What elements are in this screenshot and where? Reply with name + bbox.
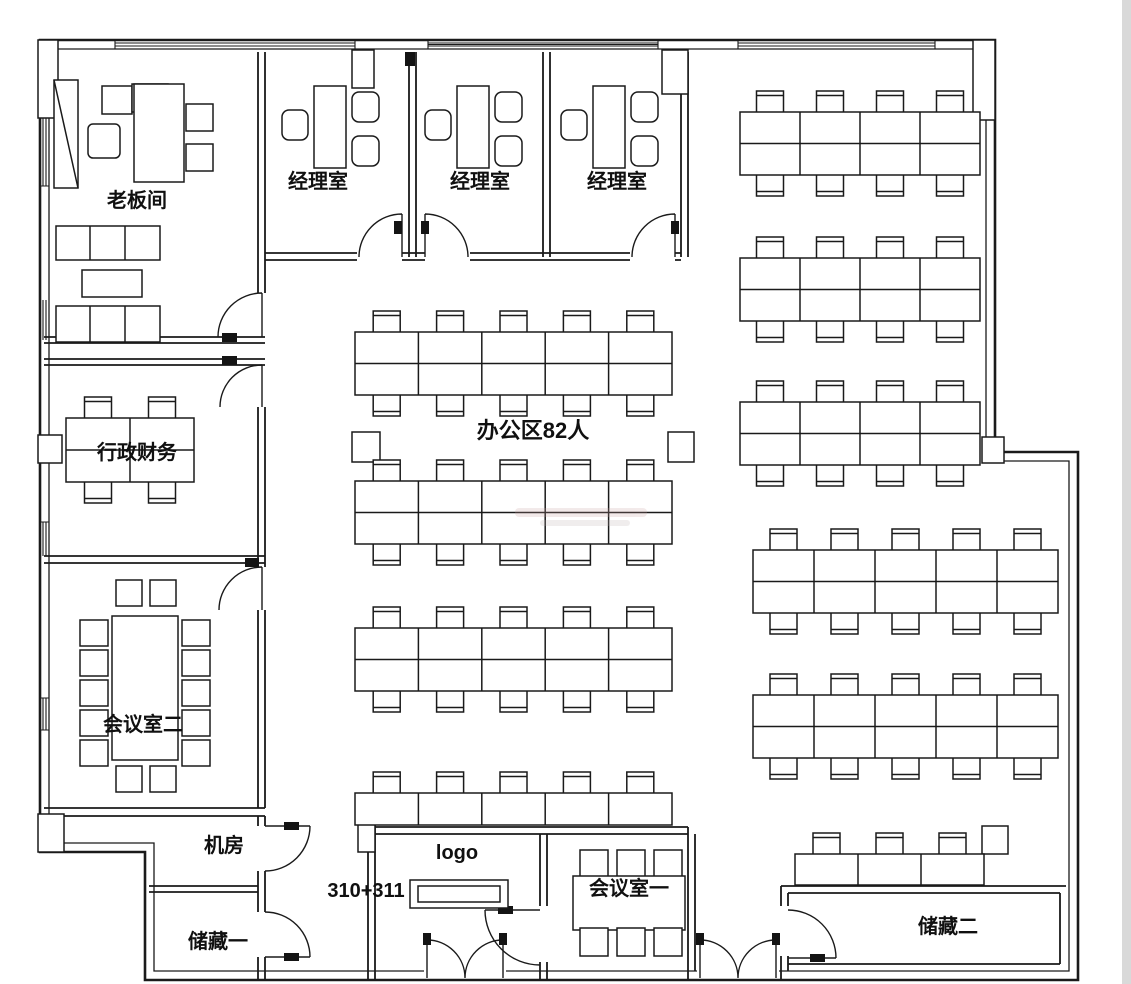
- office-chair: [425, 110, 451, 140]
- door-manager-1: [359, 214, 402, 257]
- door-jamb: [772, 933, 780, 945]
- pier: [973, 40, 995, 120]
- desk-cluster: [795, 833, 984, 885]
- floor-plan-page: 老板间 经理室 经理室 经理室 行政财务 会议室二 办公区82人 机房 储藏一 …: [0, 0, 1131, 984]
- manager-desk: [593, 86, 625, 168]
- pier: [405, 52, 415, 66]
- label-logo: logo: [436, 842, 478, 864]
- door-jamb: [394, 221, 402, 234]
- door-handle: [284, 822, 299, 830]
- chair: [80, 740, 108, 766]
- chair: [617, 928, 645, 956]
- office-chair: [561, 110, 587, 140]
- manager-room-furniture: [425, 86, 522, 168]
- chair: [654, 928, 682, 956]
- label-machine-room: 机房: [204, 833, 244, 857]
- pier: [38, 435, 62, 463]
- chair: [80, 620, 108, 646]
- floor-plan-drawing: 老板间 经理室 经理室 经理室 行政财务 会议室二 办公区82人 机房 储藏一 …: [0, 0, 1131, 984]
- chair: [182, 680, 210, 706]
- label-storage-1: 储藏一: [188, 929, 248, 953]
- label-open-office: 办公区82人: [477, 418, 589, 443]
- sofa: [56, 306, 160, 342]
- door-storage-2: [788, 910, 836, 958]
- chair: [182, 710, 210, 736]
- reception-counter-inner: [418, 886, 500, 902]
- desk-cluster: [355, 607, 672, 712]
- boss-room-furniture: [56, 84, 213, 342]
- label-meeting-room-2: 会议室二: [103, 712, 183, 736]
- desk-cluster: [753, 529, 1058, 634]
- label-storage-2: 储藏二: [918, 914, 978, 938]
- pier: [352, 50, 374, 88]
- label-manager-room-2: 经理室: [450, 169, 510, 193]
- chair: [80, 680, 108, 706]
- door-manager-2: [425, 214, 468, 257]
- chair: [116, 766, 142, 792]
- cabinet: [352, 432, 380, 462]
- conference-table: [112, 616, 178, 760]
- door-storage-1: [265, 912, 310, 957]
- sofa: [56, 226, 160, 260]
- door-jamb: [423, 933, 431, 945]
- office-chair: [495, 92, 522, 122]
- door-meeting-1: [485, 910, 540, 965]
- pier: [662, 50, 688, 94]
- desk-cluster: [740, 91, 980, 196]
- meeting-room-1-furniture: [573, 850, 685, 956]
- door-jamb: [499, 933, 507, 945]
- door-jamb: [222, 333, 237, 342]
- chair: [182, 650, 210, 676]
- door-handle: [284, 953, 299, 961]
- guest-chair: [186, 104, 213, 131]
- door-machine-room: [265, 826, 310, 871]
- chair: [116, 580, 142, 606]
- office-chair: [88, 124, 120, 158]
- door-jamb: [245, 558, 259, 567]
- cabinet: [102, 86, 132, 114]
- label-unit-number: 310+311: [327, 880, 404, 902]
- manager-room-furniture: [561, 86, 658, 168]
- cabinet: [982, 826, 1008, 854]
- workstations: [66, 86, 1058, 885]
- meeting-room-2-furniture: [80, 580, 210, 792]
- chair: [150, 766, 176, 792]
- label-admin-finance: 行政财务: [96, 440, 178, 464]
- executive-desk: [134, 84, 184, 182]
- desk-cluster: [740, 381, 980, 486]
- office-chair: [352, 136, 379, 166]
- door-boss-room: [218, 293, 262, 337]
- desk-block: [795, 854, 984, 885]
- door-jamb: [696, 933, 704, 945]
- door-jamb: [671, 221, 679, 234]
- guest-chair: [186, 144, 213, 171]
- manager-desk: [457, 86, 489, 168]
- label-manager-room-3: 经理室: [587, 169, 647, 193]
- door-jamb: [421, 221, 429, 234]
- desk-cluster: [355, 772, 672, 825]
- office-chair: [631, 92, 658, 122]
- door-manager-3: [632, 214, 675, 257]
- chair: [617, 850, 645, 878]
- label-meeting-room-1: 会议室一: [589, 876, 669, 900]
- chair: [580, 928, 608, 956]
- desk-cluster: [753, 674, 1058, 779]
- pier: [38, 814, 64, 852]
- pier: [982, 437, 1004, 463]
- page-edge: [1122, 0, 1131, 984]
- office-chair: [282, 110, 308, 140]
- chair: [80, 650, 108, 676]
- office-chair: [352, 92, 379, 122]
- chair: [182, 620, 210, 646]
- chair: [654, 850, 682, 878]
- desk-cluster: [740, 237, 980, 342]
- door-admin-finance: [220, 365, 262, 407]
- door-meeting-2: [219, 567, 262, 610]
- manager-desk: [314, 86, 346, 168]
- chair: [150, 580, 176, 606]
- door-handle: [810, 954, 825, 962]
- desk-cluster: [355, 311, 672, 416]
- coffee-table: [82, 270, 142, 297]
- label-manager-room-1: 经理室: [288, 169, 348, 193]
- office-chair: [631, 136, 658, 166]
- cabinet: [668, 432, 694, 462]
- chair: [580, 850, 608, 878]
- chair: [182, 740, 210, 766]
- label-boss-room: 老板间: [107, 188, 167, 212]
- desk-block: [355, 793, 672, 825]
- office-chair: [495, 136, 522, 166]
- door-jamb: [222, 356, 237, 365]
- manager-room-furniture: [282, 86, 379, 168]
